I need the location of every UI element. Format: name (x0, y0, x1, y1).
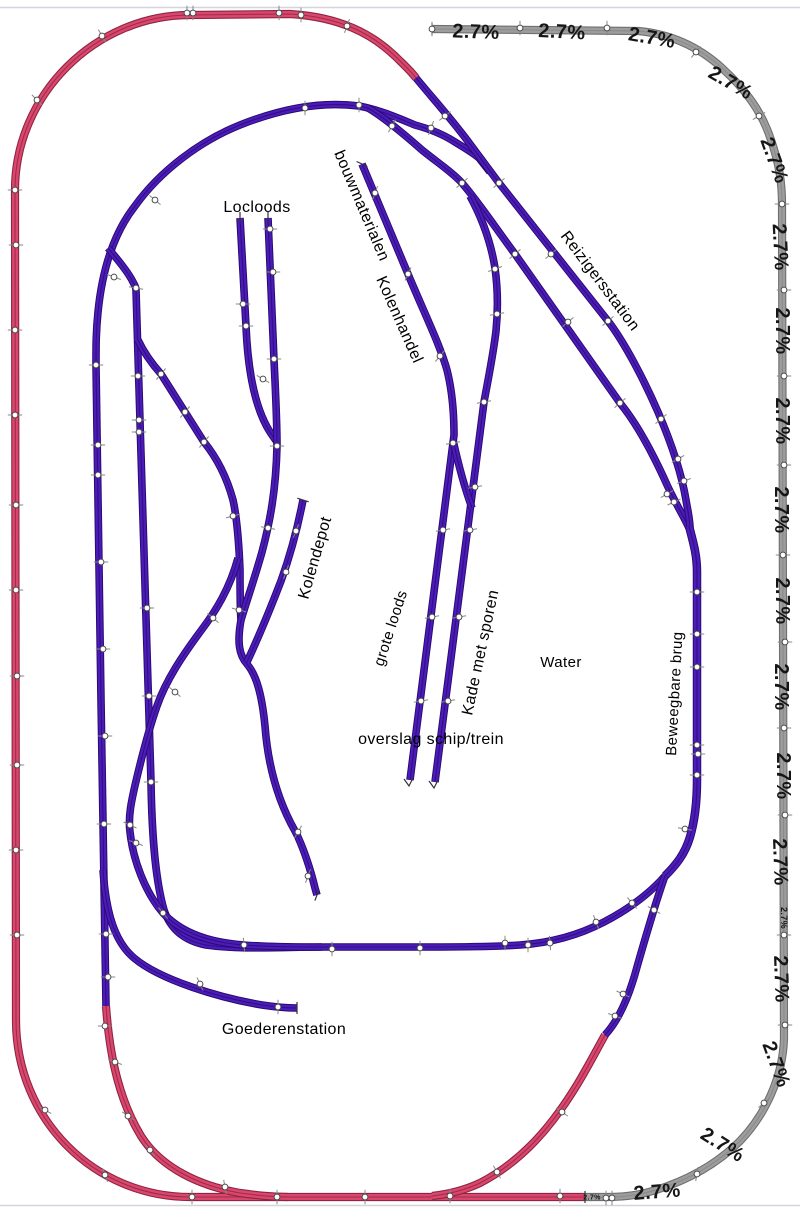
svg-text:2.7%: 2.7% (583, 1195, 601, 1202)
svg-text:2.7%: 2.7% (768, 838, 792, 886)
svg-text:overslag schip/trein: overslag schip/trein (358, 731, 504, 748)
svg-text:2.7%: 2.7% (771, 397, 793, 444)
svg-text:2.7%: 2.7% (538, 20, 586, 44)
svg-text:2.7%: 2.7% (770, 663, 792, 710)
svg-text:2.7%: 2.7% (779, 907, 789, 929)
svg-text:2.7%: 2.7% (769, 955, 793, 1003)
svg-text:Locloods: Locloods (223, 199, 290, 216)
svg-text:2.7%: 2.7% (770, 486, 792, 533)
svg-text:2.7%: 2.7% (772, 752, 794, 799)
svg-text:2.7%: 2.7% (452, 20, 500, 44)
svg-text:Goederenstation: Goederenstation (222, 1021, 346, 1038)
svg-text:2.7%: 2.7% (771, 307, 793, 354)
svg-text:2.7%: 2.7% (768, 223, 792, 271)
svg-text:2.7%: 2.7% (633, 1180, 682, 1205)
svg-text:2.7%: 2.7% (771, 577, 793, 624)
svg-text:Water: Water (540, 654, 581, 671)
